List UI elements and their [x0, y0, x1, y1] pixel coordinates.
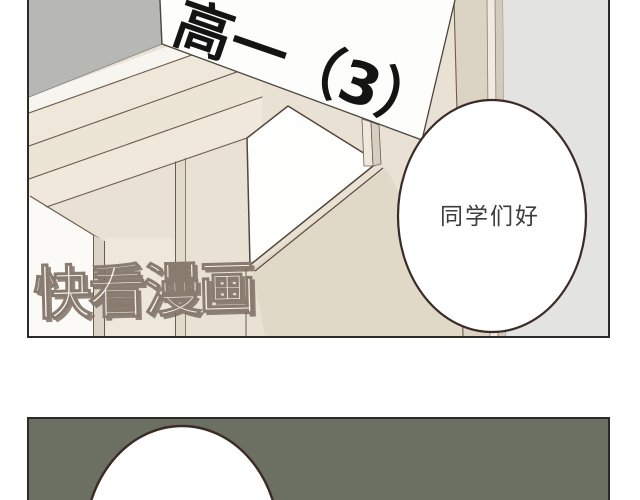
- speech-bubble-1-text: 同学们好: [440, 204, 540, 230]
- panel-2-art: [29, 419, 608, 500]
- panel-2: [27, 417, 610, 500]
- comic-page: 高一（3） 快看漫画 快看漫画 同学们好: [0, 0, 640, 500]
- watermark-text: 快看漫画: [33, 254, 255, 328]
- panel-1-art: 高一（3） 快看漫画 快看漫画 同学们好: [29, 0, 608, 336]
- panel-gap: [0, 339, 640, 416]
- watermark: 快看漫画 快看漫画: [33, 254, 258, 331]
- panel-1: 高一（3） 快看漫画 快看漫画 同学们好: [27, 0, 610, 338]
- speech-bubble-1: 同学们好: [398, 100, 586, 332]
